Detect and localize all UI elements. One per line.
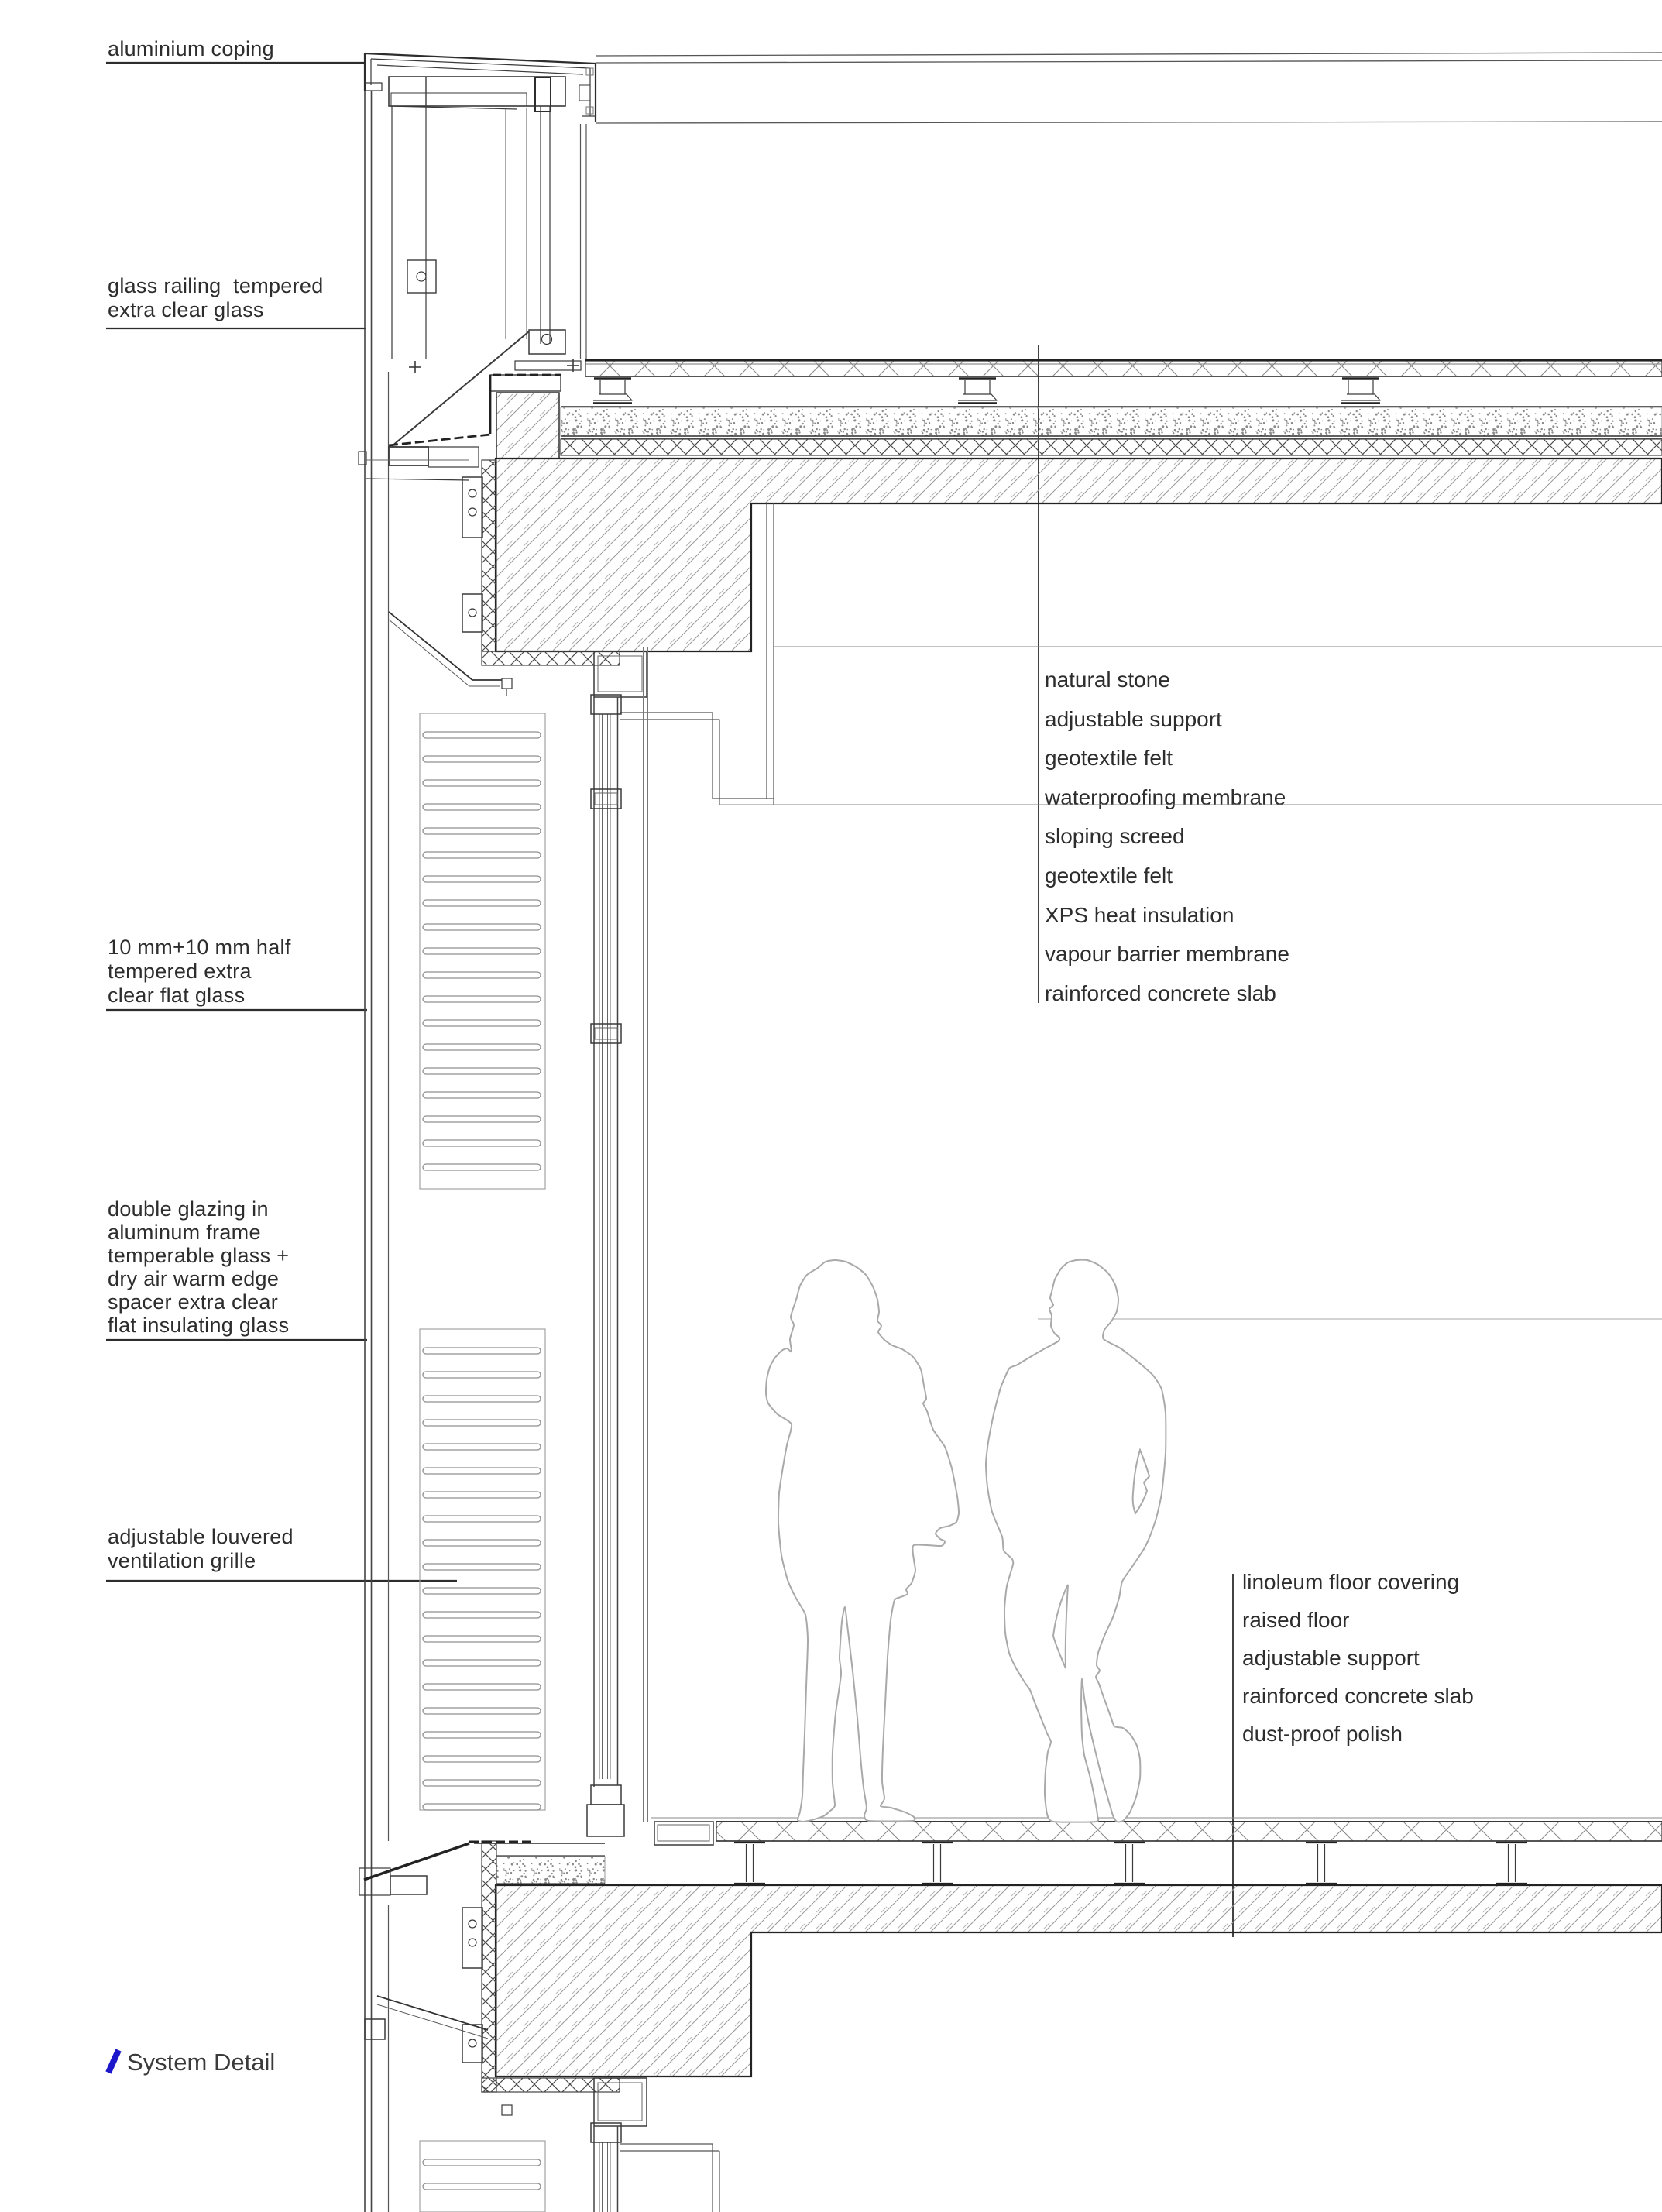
svg-text:dust-proof polish: dust-proof polish — [1242, 1722, 1403, 1746]
svg-text:dry air warm edge: dry air warm edge — [108, 1267, 279, 1290]
svg-text:rainforced concrete slab: rainforced concrete slab — [1045, 981, 1276, 1005]
svg-text:glass railing tempered: glass railing tempered — [108, 274, 324, 297]
svg-text:adjustable support: adjustable support — [1242, 1646, 1420, 1670]
svg-text:geotextile felt: geotextile felt — [1045, 746, 1173, 770]
svg-text:clear flat glass: clear flat glass — [108, 984, 245, 1007]
svg-text:geotextile felt: geotextile felt — [1045, 864, 1173, 888]
svg-text:flat insulating glass: flat insulating glass — [108, 1314, 289, 1337]
svg-text:ventilation grille: ventilation grille — [108, 1549, 256, 1572]
svg-text:temperable glass +: temperable glass + — [108, 1244, 289, 1267]
svg-text:vapour barrier membrane: vapour barrier membrane — [1045, 942, 1289, 966]
svg-text:XPS heat insulation: XPS heat insulation — [1045, 903, 1234, 927]
svg-text:natural stone: natural stone — [1045, 668, 1170, 692]
svg-text:sloping screed: sloping screed — [1045, 824, 1185, 848]
svg-text:linoleum floor covering: linoleum floor covering — [1242, 1570, 1459, 1594]
svg-text:adjustable louvered: adjustable louvered — [108, 1525, 294, 1548]
svg-text:double glazing in: double glazing in — [108, 1197, 269, 1221]
svg-text:10 mm+10 mm half: 10 mm+10 mm half — [108, 936, 291, 959]
svg-text:extra clear glass: extra clear glass — [108, 298, 264, 321]
svg-text:waterproofing membrane: waterproofing membrane — [1044, 785, 1286, 809]
svg-text:spacer extra clear: spacer extra clear — [108, 1290, 278, 1314]
svg-text:tempered extra: tempered extra — [108, 960, 252, 983]
svg-text:raised floor: raised floor — [1242, 1608, 1350, 1632]
svg-text:aluminum frame: aluminum frame — [108, 1221, 261, 1244]
svg-text:rainforced concrete slab: rainforced concrete slab — [1242, 1684, 1474, 1708]
svg-text:System Detail: System Detail — [127, 2049, 275, 2076]
svg-text:aluminium coping: aluminium coping — [108, 37, 274, 60]
svg-text:adjustable support: adjustable support — [1045, 707, 1222, 731]
